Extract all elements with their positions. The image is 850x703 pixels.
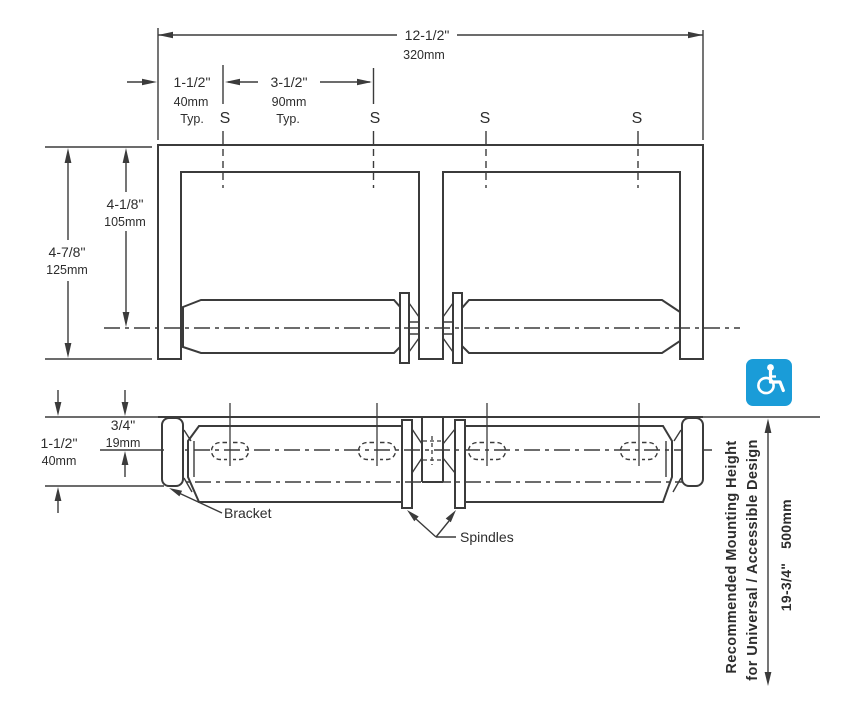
mounting-height-callout: Recommended Mounting Height for Universa… <box>724 359 794 686</box>
plan-view: 3/4" 19mm 1-1/2" 40mm Bracket Spindles <box>41 390 820 545</box>
bracket-callout: Bracket <box>169 488 272 521</box>
front-view: S S S S 12-1/2" 320mm 1-1/2" 40mm Typ. 3… <box>45 27 740 363</box>
left-paper-roll <box>183 300 401 353</box>
mounting-note-line2: for Universal / Accessible Design <box>745 439 761 681</box>
mounting-height-mm: 500mm <box>778 499 794 549</box>
dim-screw-offset-in: 1-1/2" <box>174 74 211 90</box>
dim-overall-height-in: 4-7/8" <box>49 244 86 260</box>
dim-center-height-mm: 105mm <box>104 215 146 229</box>
accessibility-icon <box>746 359 792 406</box>
dim-spindle-depth-mm: 19mm <box>106 436 141 450</box>
screw-label: S <box>370 110 381 127</box>
dim-overall-depth-in: 1-1/2" <box>41 435 78 451</box>
dim-overall-height-mm: 125mm <box>46 263 88 277</box>
spindles-callout: Spindles <box>407 510 514 545</box>
hidden-roll-clips <box>212 443 658 460</box>
technical-drawing-page: S S S S 12-1/2" 320mm 1-1/2" 40mm Typ. 3… <box>0 0 850 703</box>
dim-screw-spacing-in: 3-1/2" <box>271 74 308 90</box>
dim-screw-spacing-mm: 90mm <box>272 95 307 109</box>
screw-label: S <box>220 110 231 127</box>
dim-overall-depth: 1-1/2" 40mm <box>41 390 78 513</box>
dim-overall-height: 4-7/8" 125mm <box>46 148 88 358</box>
dim-screw-offset-note: Typ. <box>180 112 204 126</box>
dim-screw-spacing-note: Typ. <box>276 112 300 126</box>
right-bracket <box>682 418 703 486</box>
left-bracket <box>162 418 183 486</box>
mounting-note-line1: Recommended Mounting Height <box>724 440 740 673</box>
dim-screw-offset: 1-1/2" 40mm Typ. <box>127 74 210 126</box>
spindles-label: Spindles <box>460 529 514 545</box>
dim-overall-width-mm: 320mm <box>403 48 445 62</box>
right-roll-plan <box>465 426 672 502</box>
left-spindle-plan <box>402 420 412 508</box>
screw-label: S <box>632 110 643 127</box>
dim-center-height-in: 4-1/8" <box>107 196 144 212</box>
left-roll-plan <box>188 426 402 502</box>
bracket-label: Bracket <box>224 505 272 521</box>
dim-screw-offset-mm: 40mm <box>174 95 209 109</box>
dim-overall-depth-mm: 40mm <box>42 454 77 468</box>
dim-spindle-depth-in: 3/4" <box>111 417 135 433</box>
mounting-height-in: 19-3/4" <box>778 563 794 611</box>
screw-label: S <box>480 110 491 127</box>
dim-screw-spacing: 3-1/2" 90mm Typ. <box>225 74 372 126</box>
right-paper-roll <box>462 300 680 353</box>
dim-overall-width-in: 12-1/2" <box>405 27 450 43</box>
right-spindle-plan <box>455 420 465 508</box>
dispenser-dimension-drawing: S S S S 12-1/2" 320mm 1-1/2" 40mm Typ. 3… <box>0 0 850 703</box>
